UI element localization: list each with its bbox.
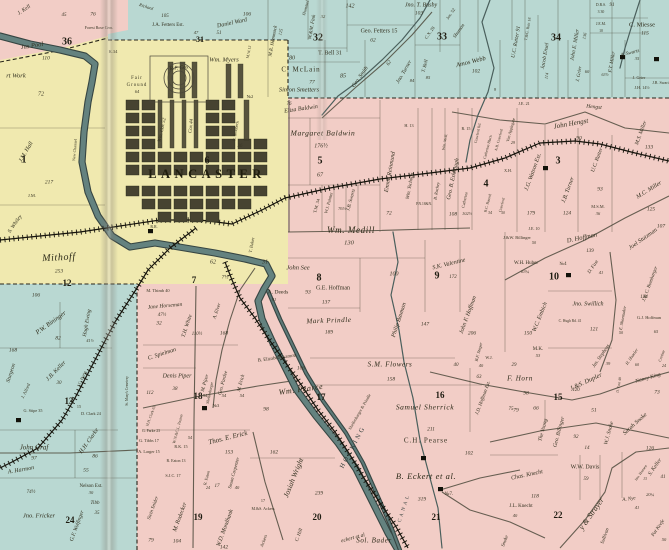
map-label: J.M. bbox=[28, 193, 36, 198]
map-label: 63¼ bbox=[521, 269, 530, 274]
map-label: 36 bbox=[238, 144, 243, 149]
map-label: C.H. Pearse bbox=[404, 437, 448, 445]
map-label: 79 bbox=[148, 537, 154, 543]
map-label: Geo. Fetters 15 bbox=[361, 28, 398, 34]
map-label: G. Stipe 35 bbox=[24, 408, 43, 413]
city-lot-strip bbox=[226, 64, 231, 98]
map-label: W.J. bbox=[485, 355, 492, 360]
map-label: Fair bbox=[131, 76, 143, 81]
map-label: 84 bbox=[410, 78, 415, 83]
map-label: Mark Prindle bbox=[305, 316, 351, 326]
map-label: G. Parke 23 bbox=[142, 429, 160, 433]
map-label: 40 bbox=[513, 513, 518, 518]
city-block bbox=[142, 126, 155, 136]
map-label: 20 bbox=[313, 512, 323, 522]
map-label: 21 bbox=[432, 512, 442, 522]
map-label: 93 bbox=[305, 289, 311, 295]
map-label: J.A. Fetters Est. bbox=[152, 23, 184, 28]
building-marker bbox=[421, 456, 426, 460]
city-block bbox=[126, 139, 139, 149]
map-label: 41 bbox=[599, 270, 604, 275]
city-block bbox=[254, 139, 267, 149]
map-label: 31 bbox=[261, 259, 268, 265]
map-label: 130 bbox=[344, 239, 355, 246]
city-block bbox=[190, 186, 203, 196]
city-block bbox=[142, 100, 155, 110]
map-label: J.E. 21 bbox=[518, 101, 530, 106]
map-label: 253 bbox=[55, 268, 64, 274]
map-label: 124 bbox=[640, 295, 648, 300]
map-label: John See bbox=[286, 264, 309, 271]
map-label: 17 bbox=[215, 484, 221, 489]
map-label: 24 bbox=[662, 363, 666, 368]
map-label: 41 bbox=[661, 475, 666, 480]
map-label: J.L. Knecht bbox=[509, 504, 533, 509]
map-label: 17 bbox=[261, 498, 265, 503]
map-label: 217 bbox=[45, 179, 54, 185]
map-label: 54 bbox=[188, 435, 192, 440]
city-lot-strip bbox=[170, 100, 174, 148]
map-label: 41½ bbox=[86, 338, 94, 343]
map-label: 91 bbox=[610, 3, 615, 8]
city-block bbox=[142, 152, 155, 162]
map-label: LANCASTER bbox=[148, 167, 266, 181]
map-fold-crease bbox=[100, 0, 118, 550]
city-block bbox=[142, 139, 155, 149]
map-label: 50 bbox=[501, 211, 505, 215]
map-label: 32 bbox=[155, 320, 162, 326]
map-label: G.E. Hoffman bbox=[316, 284, 350, 291]
map-label: C. McLain bbox=[281, 66, 320, 74]
map-label: 54 bbox=[240, 393, 245, 398]
map-label: C. Hugh Rd. 41 bbox=[559, 319, 582, 323]
map-label: 189 bbox=[325, 329, 334, 335]
map-label: A. Larger 15 bbox=[138, 449, 159, 454]
map-label: 106 bbox=[243, 11, 252, 17]
map-label: 98 bbox=[523, 390, 529, 396]
map-label: 15 bbox=[77, 404, 81, 409]
map-label: 150 bbox=[524, 330, 533, 336]
city-block bbox=[206, 113, 219, 123]
map-label: 31 bbox=[196, 35, 204, 44]
map-label: 51 bbox=[591, 407, 597, 413]
map-label: 79 bbox=[513, 407, 519, 413]
city-block bbox=[126, 152, 139, 162]
building-marker bbox=[16, 418, 21, 422]
map-label: 102½ bbox=[462, 211, 473, 216]
map-label: 36 bbox=[62, 36, 72, 47]
map-label: X.H. bbox=[504, 168, 512, 173]
map-label: 206 bbox=[468, 330, 477, 336]
city-block bbox=[222, 186, 235, 196]
city-block bbox=[158, 186, 171, 196]
map-label: 35 bbox=[95, 511, 101, 516]
city-block bbox=[126, 100, 139, 110]
map-label: 125 bbox=[647, 206, 656, 212]
map-label: R. Eaton 13 bbox=[167, 458, 186, 463]
map-label: St. Mary's Cemetery bbox=[125, 376, 129, 406]
map-label: F. Horn bbox=[506, 375, 533, 383]
map-label: 142 bbox=[346, 2, 355, 9]
map-label: 97 bbox=[31, 455, 37, 461]
map-label: J.E.M. bbox=[596, 22, 606, 26]
map-label: J. Grier bbox=[633, 75, 646, 80]
map-label: M.K. bbox=[533, 347, 544, 352]
map-label: Jno. T. Busby bbox=[405, 2, 438, 8]
map-label: 108 bbox=[449, 211, 458, 217]
map-label: 112 bbox=[146, 391, 154, 396]
map-label: D. Clark 24 bbox=[81, 411, 102, 416]
map-label: 9 bbox=[435, 270, 440, 281]
map-label: 168 bbox=[220, 330, 229, 336]
map-label: 22 bbox=[554, 510, 564, 520]
building-marker bbox=[654, 57, 659, 61]
map-label: 85 bbox=[340, 73, 346, 79]
city-block bbox=[206, 126, 219, 136]
map-label: 162 bbox=[270, 449, 279, 455]
city-block bbox=[190, 212, 203, 222]
map-label: B. Eckert et al. bbox=[396, 471, 456, 481]
map-label: 86 bbox=[92, 453, 98, 459]
map-label: 105 bbox=[161, 14, 169, 19]
map-label: 63 bbox=[477, 375, 483, 380]
map-label: 13 bbox=[643, 477, 647, 481]
city-block bbox=[158, 152, 171, 162]
map-label: C. Miesse bbox=[629, 21, 655, 28]
city-block bbox=[190, 152, 203, 162]
map-label: R.R. bbox=[150, 224, 157, 229]
map-label: 45 bbox=[62, 13, 68, 18]
city-block bbox=[174, 212, 187, 222]
map-label: 102 bbox=[465, 450, 474, 456]
map-label: 139 bbox=[586, 249, 594, 254]
building-marker bbox=[438, 487, 443, 491]
plat-map-canvas[interactable]: J. Kell4576Forest Rose Cem.Jas Pool36Ric… bbox=[0, 0, 669, 550]
map-label: Denis Piper bbox=[162, 373, 192, 379]
map-label: 98 bbox=[263, 406, 269, 412]
map-label: 38 bbox=[173, 387, 179, 392]
map-label: 4 bbox=[484, 178, 489, 189]
city-lot-strip bbox=[192, 62, 197, 98]
city-block bbox=[206, 199, 219, 209]
map-label: 40 bbox=[235, 485, 240, 490]
city-block bbox=[158, 212, 171, 222]
city-block bbox=[142, 186, 155, 196]
building-marker bbox=[543, 166, 548, 170]
map-label: 76 bbox=[90, 11, 96, 17]
map-label: 126 bbox=[646, 445, 655, 451]
map-label: 17 bbox=[317, 392, 327, 402]
map-label: 18 bbox=[194, 391, 204, 401]
map-label: 73 bbox=[654, 389, 660, 395]
city-block bbox=[174, 186, 187, 196]
map-label: M.S.M. bbox=[591, 204, 605, 209]
map-label: 63½ bbox=[602, 72, 609, 77]
map-label: №2 bbox=[247, 94, 254, 99]
map-label: 64 bbox=[135, 89, 140, 94]
map-label: 15 bbox=[554, 392, 564, 402]
city-block bbox=[174, 199, 187, 209]
map-label: H. 13 bbox=[404, 123, 413, 128]
map-label: 13 bbox=[65, 396, 75, 406]
map-label: 34 bbox=[488, 210, 492, 215]
city-block bbox=[254, 152, 267, 162]
map-label: 12 bbox=[63, 278, 73, 288]
map-label: 51 bbox=[217, 31, 222, 36]
city-block bbox=[206, 212, 219, 222]
map-label: 41 bbox=[635, 505, 640, 510]
map-label: 40 bbox=[454, 363, 460, 368]
map-label: 103 bbox=[415, 10, 424, 16]
map-label: S.M. Flowers bbox=[368, 361, 413, 369]
map-label: 30 bbox=[57, 381, 63, 386]
city-block bbox=[206, 186, 219, 196]
map-label: 8 bbox=[317, 272, 322, 283]
map-label: 319 bbox=[417, 496, 427, 502]
map-label: 100 bbox=[390, 271, 399, 277]
map-label: 33 bbox=[437, 31, 447, 42]
map-label: 62 bbox=[370, 37, 376, 43]
city-block bbox=[238, 152, 251, 162]
map-label: M. Thimb 40 bbox=[146, 288, 170, 293]
map-label: 90 bbox=[576, 135, 582, 141]
city-block bbox=[174, 152, 187, 162]
building-marker bbox=[202, 406, 207, 410]
map-label: 72 bbox=[38, 91, 44, 97]
city-block bbox=[126, 113, 139, 123]
map-label: 147 bbox=[421, 320, 430, 327]
map-label: 77 bbox=[309, 79, 315, 85]
map-label: A. Deeds bbox=[268, 289, 288, 295]
map-label: 179 bbox=[527, 210, 536, 216]
map-label: 7½ bbox=[222, 273, 229, 280]
map-label: 16 bbox=[436, 390, 446, 400]
map-label: 82 bbox=[55, 335, 61, 341]
map-label: 20¼ bbox=[646, 492, 655, 497]
map-label: 133 bbox=[645, 144, 654, 150]
map-label: 6 bbox=[205, 155, 210, 166]
map-label: 176½ bbox=[314, 142, 328, 149]
map-label: Mithoff bbox=[41, 251, 77, 264]
map-label: 14 bbox=[585, 446, 591, 451]
map-label: 107 bbox=[657, 223, 666, 229]
city-block bbox=[222, 100, 235, 110]
map-label: 47½ bbox=[158, 313, 167, 318]
map-viewport: J. Kell4576Forest Rose Cem.Jas Pool36Ric… bbox=[0, 0, 669, 550]
map-fold-crease bbox=[316, 0, 328, 140]
map-label: 3 30 bbox=[598, 10, 605, 14]
map-label: 106 bbox=[297, 365, 306, 371]
map-label: D.R.S. bbox=[596, 3, 606, 7]
map-label: 24 bbox=[206, 485, 210, 490]
map-label: 39 bbox=[606, 361, 611, 366]
map-label: 59 bbox=[584, 477, 590, 482]
map-label: Jno. Swillich bbox=[573, 301, 604, 307]
map-label: 102 bbox=[472, 68, 481, 74]
map-label: 80 bbox=[289, 55, 295, 61]
map-label: R.K. 15 bbox=[174, 444, 187, 449]
city-lot-strip bbox=[182, 100, 186, 148]
city-block bbox=[206, 139, 219, 149]
map-label: 7 bbox=[192, 275, 197, 285]
map-label: M.&S. Ackers bbox=[252, 506, 275, 511]
map-label: John Graf bbox=[20, 444, 50, 452]
map-label: 10 bbox=[549, 271, 559, 282]
building-marker bbox=[566, 273, 571, 277]
city-block bbox=[222, 199, 235, 209]
map-label: №3 bbox=[213, 403, 220, 408]
map-label: 60 bbox=[585, 69, 590, 74]
map-label: 5 bbox=[318, 155, 323, 166]
city-lot-strip bbox=[194, 100, 198, 148]
map-label: №7. bbox=[445, 491, 454, 497]
map-label: J.&W. Billinger bbox=[503, 235, 531, 240]
map-label: J.E. 10 bbox=[529, 226, 540, 231]
city-lot-strip bbox=[238, 64, 243, 98]
map-label: 211 bbox=[427, 426, 435, 432]
map-label: 172 bbox=[449, 275, 457, 280]
map-label: 118 bbox=[531, 493, 539, 499]
map-label: 62 bbox=[210, 259, 216, 265]
map-label: 3 bbox=[556, 155, 561, 166]
map-label: W.W. Davis bbox=[571, 464, 600, 470]
city-block bbox=[222, 152, 235, 162]
map-label: 10 bbox=[599, 29, 603, 33]
map-label: Wm. Myers bbox=[209, 56, 239, 63]
city-block bbox=[222, 113, 235, 123]
map-label: W.H. Huber bbox=[514, 261, 538, 266]
map-label: 19 bbox=[194, 512, 204, 522]
city-block bbox=[142, 113, 155, 123]
map-label: 168 bbox=[9, 347, 18, 353]
map-label: G.J. Hoffman bbox=[637, 315, 662, 320]
map-label: 76½ bbox=[338, 206, 347, 211]
map-label: 85 bbox=[426, 75, 431, 80]
map-label: Samuel Sherrick bbox=[396, 403, 454, 412]
map-label: №4 bbox=[560, 261, 568, 267]
map-label: 158 bbox=[387, 376, 396, 382]
city-block bbox=[238, 186, 251, 196]
map-label: Ground bbox=[127, 83, 148, 88]
map-label: 142 bbox=[220, 543, 229, 550]
map-label: Jno. Fricker bbox=[23, 512, 56, 519]
city-block bbox=[238, 199, 251, 209]
map-label: 76 bbox=[287, 102, 293, 107]
map-label: 55 bbox=[83, 467, 89, 473]
map-label: rt Work bbox=[6, 72, 26, 79]
city-block bbox=[142, 199, 155, 209]
map-label: 106 bbox=[32, 292, 41, 298]
map-label: 67 bbox=[317, 172, 324, 178]
map-label: 91 bbox=[272, 297, 277, 302]
map-label: 66 bbox=[533, 405, 539, 411]
map-label: 121 bbox=[590, 326, 599, 332]
map-label: J.H. 14½ bbox=[634, 85, 649, 90]
map-label: 72 bbox=[386, 210, 392, 216]
map-label: G. Tibbs 17 bbox=[139, 438, 159, 443]
map-label: S.J.C. 17 bbox=[165, 473, 180, 478]
map-label: 50 bbox=[662, 537, 667, 542]
map-label: 93 bbox=[597, 186, 603, 192]
map-label: 29 bbox=[512, 363, 518, 368]
map-label: 54 bbox=[222, 393, 227, 398]
map-label: Wm. Medill bbox=[327, 225, 375, 235]
city-block bbox=[126, 126, 139, 136]
building-marker bbox=[148, 229, 153, 233]
map-label: Sol. Bader bbox=[356, 537, 392, 545]
city-block bbox=[190, 199, 203, 209]
map-label: R. 15 bbox=[461, 126, 470, 131]
map-label: 110 bbox=[42, 55, 50, 61]
map-label: J.B. Swart. bbox=[652, 80, 669, 85]
map-label: P.N.18&N. bbox=[416, 202, 432, 206]
map-label: Nelson Est. bbox=[79, 484, 102, 489]
map-label: Tibb bbox=[91, 501, 100, 506]
city-block bbox=[126, 186, 139, 196]
city-lot-strip bbox=[244, 100, 249, 140]
map-label: 30 bbox=[89, 490, 94, 495]
map-label: 34 bbox=[551, 32, 561, 43]
map-label: 74½ bbox=[27, 490, 36, 495]
map-label: 137 bbox=[322, 299, 331, 305]
map-label: 35 bbox=[635, 56, 640, 61]
map-label: 153 bbox=[225, 449, 234, 455]
city-block bbox=[126, 165, 139, 175]
city-block bbox=[254, 186, 267, 196]
map-label: 239 bbox=[315, 490, 324, 496]
city-block bbox=[158, 199, 171, 209]
map-label: 53 bbox=[536, 353, 541, 358]
map-label: 24 bbox=[66, 515, 76, 525]
map-label: 124 bbox=[563, 209, 572, 216]
map-label: 92 bbox=[574, 435, 580, 440]
map-label: 120 bbox=[572, 388, 580, 393]
map-label: 104 bbox=[173, 537, 182, 544]
map-label: 110½ bbox=[192, 332, 203, 337]
map-label: 115 bbox=[641, 30, 649, 36]
map-label: Simon Smetters bbox=[279, 86, 320, 93]
